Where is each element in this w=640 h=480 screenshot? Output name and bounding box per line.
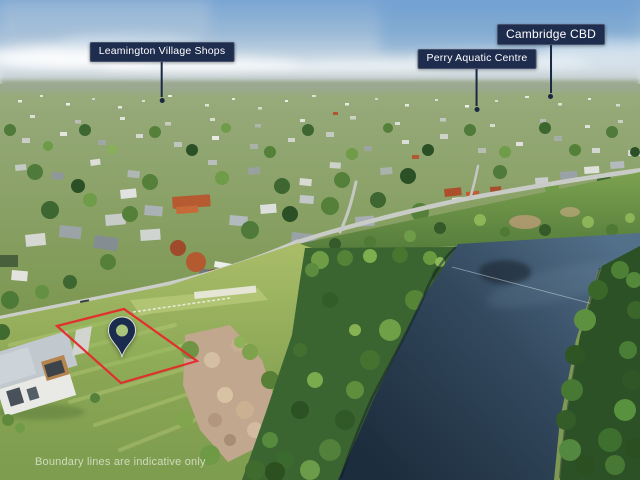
callout-cambridge-cbd: Cambridge CBD: [497, 24, 605, 99]
property-aerial-photo: Leamington Village Shops Perry Aquatic C…: [0, 0, 640, 480]
location-pin-icon: [107, 316, 137, 363]
callout-label: Leamington Village Shops: [90, 42, 235, 62]
callout-leamington-village-shops: Leamington Village Shops: [90, 42, 235, 103]
callout-pointer-dot: [160, 98, 165, 103]
callout-pointer-line: [550, 45, 552, 93]
callout-pointer-dot: [549, 94, 554, 99]
callout-pointer-dot: [474, 107, 479, 112]
boundary-disclaimer-text: Boundary lines are indicative only: [35, 456, 206, 468]
callout-label: Cambridge CBD: [497, 24, 605, 45]
callout-pointer-line: [161, 62, 163, 97]
callout-pointer-line: [476, 69, 478, 106]
